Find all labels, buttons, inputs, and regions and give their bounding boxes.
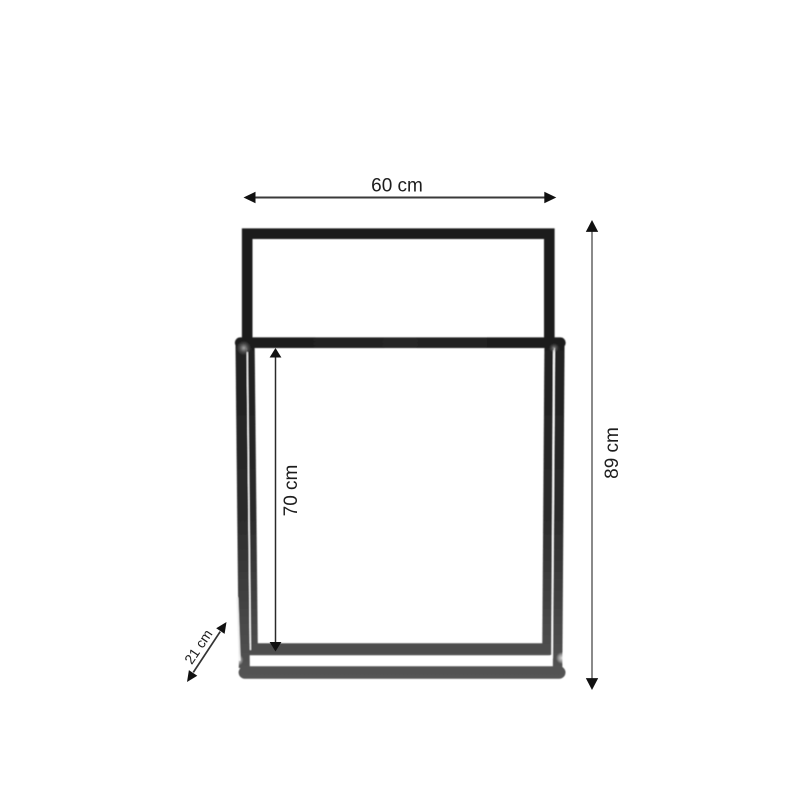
svg-text:89 cm: 89 cm bbox=[602, 427, 623, 479]
svg-text:70 cm: 70 cm bbox=[281, 465, 302, 517]
svg-text:60 cm: 60 cm bbox=[371, 176, 423, 197]
